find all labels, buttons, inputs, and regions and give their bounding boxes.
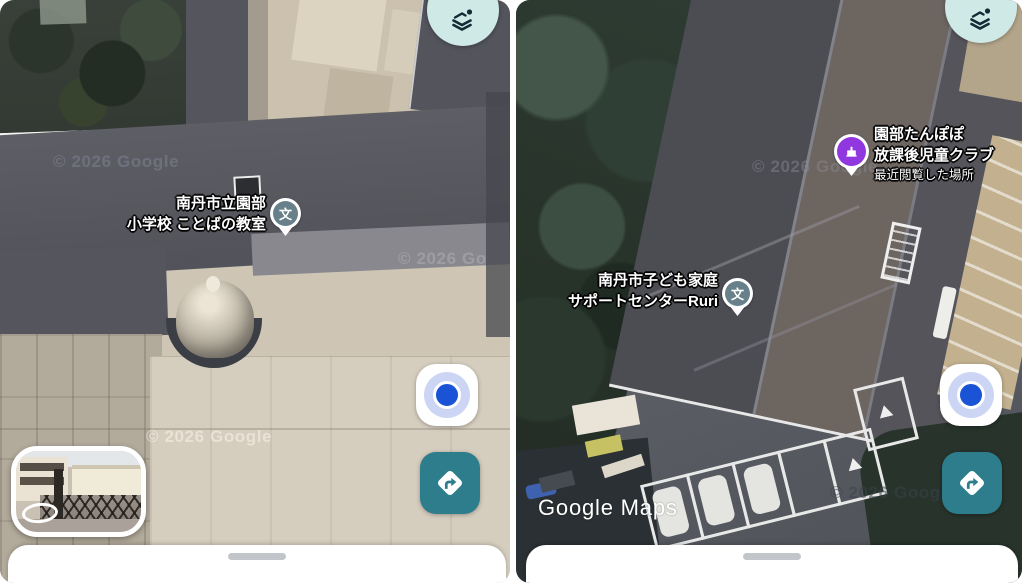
my-location-dot-icon [957,381,985,409]
copyright-watermark: © 2026 Go [398,249,487,269]
dual-map-screenshot: © 2026 Google © 2026 Go © 2026 Google 南丹… [0,0,1022,583]
white-car-shape [742,462,782,516]
bottom-sheet[interactable] [8,545,506,583]
recent-place-pin[interactable] [834,134,869,169]
place-label-line2: 放課後児童クラブ [874,145,994,166]
my-location-halo [424,372,470,418]
my-location-halo [948,372,994,418]
copyright-watermark: © 2026 Google [53,152,179,172]
directions-icon [433,466,467,500]
school-pin[interactable]: 文 [270,198,301,229]
google-maps-logo: Google Maps [538,495,678,521]
building-icon [837,137,866,166]
place-label-school[interactable]: 南丹市立園部 小学校 ことばの教室 [10,193,266,235]
place-label-line2: 小学校 ことばの教室 [10,214,266,235]
dome-tip-shape [206,276,220,292]
dome-shape [176,280,254,358]
layers-icon [447,6,477,36]
my-location-button[interactable] [416,364,478,426]
directions-button[interactable] [420,452,480,514]
plaza-step-shape [291,0,386,72]
place-label-line2: サポートセンターRuri [518,291,718,312]
right-map-panel[interactable]: © 2026 Google © 2026 Google Google Maps … [516,0,1022,583]
directions-button[interactable] [942,452,1002,514]
stall-arrow-mark [846,456,862,471]
street-view-thumbnail[interactable] [11,446,146,537]
place-label-recent[interactable]: 園部たんぽぽ 放課後児童クラブ 最近閲覧した場所 [874,124,994,184]
stall-arrow-mark [877,404,893,419]
directions-icon [955,466,989,500]
place-label-line1: 園部たんぽぽ [874,124,994,145]
my-location-button[interactable] [940,364,1002,426]
layers-icon [965,5,995,35]
my-location-dot-icon [433,381,461,409]
place-label-line1: 南丹市子ども家庭 [518,270,718,291]
school-pin[interactable]: 文 [722,278,753,309]
place-label-subtitle: 最近閲覧した場所 [874,166,994,184]
sheet-drag-handle[interactable] [228,553,286,560]
school-pin-glyph: 文 [273,201,298,226]
copyright-watermark: © 2026 Google [146,427,272,447]
sheet-drag-handle[interactable] [743,553,801,560]
copyright-watermark: © 2026 Google [830,483,956,503]
place-label-line1: 南丹市立園部 [10,193,266,214]
courtyard-light-patch [40,0,87,25]
school-pin-glyph: 文 [725,281,750,306]
white-car-shape [697,473,737,527]
roof-lower-shape [0,245,169,341]
left-map-panel[interactable]: © 2026 Google © 2026 Go © 2026 Google 南丹… [0,0,510,583]
place-label-support[interactable]: 南丹市子ども家庭 サポートセンターRuri [518,270,718,312]
shadow-edge-shape [486,92,510,337]
bottom-sheet[interactable] [526,545,1018,583]
courtyard-garden-shape [0,0,197,136]
